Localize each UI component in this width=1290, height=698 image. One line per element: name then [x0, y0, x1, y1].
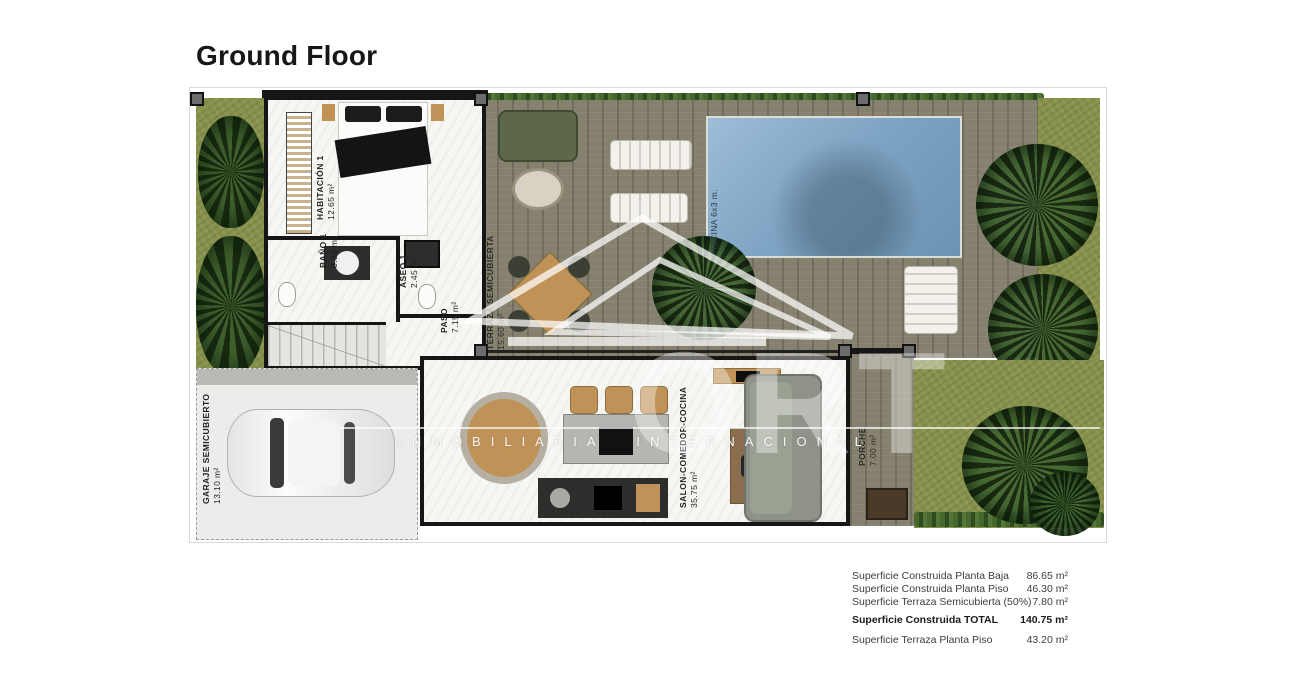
- duvet: [335, 126, 432, 178]
- room-label-piscina: PISCINA 6x3 m.: [710, 189, 720, 256]
- floor-plan: HABITACIÓN 1 12.65 m² BAÑO 1 3.35 m² ASE…: [190, 88, 1106, 542]
- cooktop: [594, 486, 622, 510]
- room-area: 35.75 m²: [690, 387, 700, 508]
- room-name: TERRAZA SEMICUBIERTA: [486, 235, 496, 350]
- toilet: [418, 284, 436, 309]
- room-label-habitacion: HABITACIÓN 1 12.65 m²: [316, 155, 336, 220]
- sofa-seats: [750, 382, 792, 514]
- tree: [196, 236, 266, 376]
- round-dining-table: [460, 392, 548, 484]
- room-name: GARAJE SEMICUBIERTO: [202, 394, 212, 504]
- room-label-paso: PASO 7.15 m²: [440, 301, 460, 333]
- outdoor-chair: [568, 310, 590, 332]
- pillar: [190, 92, 204, 106]
- pillar: [856, 92, 870, 106]
- windshield: [270, 418, 284, 488]
- page-title: Ground Floor: [196, 40, 377, 72]
- sun-lounger: [610, 140, 692, 170]
- pillow: [386, 106, 422, 122]
- room-label-salon: SALON-COMEDOR-COCINA 35.75 m²: [679, 387, 699, 508]
- pillar: [838, 344, 852, 358]
- kitchen-sink: [550, 488, 570, 508]
- garage: [196, 368, 418, 540]
- room-name: SALON-COMEDOR-COCINA: [679, 387, 689, 508]
- room-name: HABITACIÓN 1: [316, 155, 326, 220]
- cutting-board: [636, 484, 660, 512]
- sofa: [744, 374, 822, 522]
- room-label-aseo: ASEO 1 2.45 m²: [399, 254, 419, 288]
- toilet: [278, 282, 296, 307]
- nightstand: [322, 104, 335, 121]
- swimming-pool: [706, 116, 962, 258]
- room-area: 3.35 m²: [330, 233, 340, 268]
- room-area: 7.15 m²: [451, 301, 461, 333]
- room-area: 13.10 m²: [213, 394, 223, 504]
- rear-window: [344, 422, 355, 484]
- summary-value: 43.20 m²: [1027, 634, 1068, 647]
- staircase: [268, 322, 386, 366]
- summary-value: 7.80 m²: [1032, 596, 1068, 609]
- door-mat: [866, 488, 908, 520]
- room-name: PASO: [440, 301, 450, 333]
- room-name: PORCHE: [858, 427, 868, 466]
- double-sun-lounger: [904, 266, 958, 334]
- summary-label: Superficie Construida Planta Baja: [852, 570, 1009, 583]
- room-area: 15.60 m²: [497, 235, 507, 350]
- room-area: 2.45 m²: [410, 254, 420, 288]
- bed: [338, 102, 428, 236]
- summary-value: 140.75 m²: [1020, 614, 1068, 627]
- outdoor-chair: [508, 256, 530, 278]
- sliding-door-track: [482, 350, 852, 353]
- pillar: [902, 344, 916, 358]
- room-area: 7.00 m²: [869, 427, 879, 466]
- pillow: [345, 106, 381, 122]
- room-name: ASEO 1: [399, 254, 409, 288]
- dining-chair: [570, 386, 598, 414]
- tree: [198, 116, 264, 228]
- summary-row: Superficie Construida Planta Baja 86.65 …: [852, 570, 1068, 583]
- summary-row-total: Superficie Construida TOTAL 140.75 m²: [852, 614, 1068, 627]
- room-label-garaje: GARAJE SEMICUBIERTO 13.10 m²: [202, 394, 222, 504]
- room-label-terraza: TERRAZA SEMICUBIERTA 15.60 m²: [486, 235, 506, 350]
- summary-row: Superficie Construida Planta Piso 46.30 …: [852, 583, 1068, 596]
- table-runner: [599, 427, 633, 455]
- outdoor-chair: [508, 310, 530, 332]
- wardrobe: [286, 112, 312, 234]
- palm-tree: [1030, 472, 1100, 536]
- lower-building: [420, 356, 850, 526]
- summary-value: 86.65 m²: [1027, 570, 1068, 583]
- nightstand: [431, 104, 444, 121]
- outdoor-sofa: [498, 110, 578, 162]
- room-label-porche: PORCHE 7.00 m²: [858, 427, 878, 466]
- palm-tree: [976, 144, 1098, 266]
- room-label-bano: BAÑO 1 3.35 m²: [319, 233, 339, 268]
- room-area: 12.65 m²: [327, 155, 337, 220]
- garage-apron: [197, 369, 417, 385]
- parapet-wall: [262, 90, 488, 98]
- room-name: BAÑO 1: [319, 233, 329, 268]
- summary-value: 46.30 m²: [1027, 583, 1068, 596]
- surface-summary-table: Superficie Construida Planta Baja 86.65 …: [852, 570, 1068, 647]
- dining-chair: [605, 386, 633, 414]
- dining-table: [563, 414, 669, 464]
- pillar: [474, 92, 488, 106]
- car: [227, 409, 395, 497]
- summary-label: Superficie Construida Planta Piso: [852, 583, 1008, 596]
- round-side-table: [512, 168, 564, 210]
- summary-row: Superficie Terraza Semicubierta (50%) 7.…: [852, 596, 1068, 609]
- summary-label: Superficie Terraza Semicubierta (50%): [852, 596, 1032, 609]
- kitchen-counter: [538, 478, 668, 518]
- dining-chair: [640, 386, 668, 414]
- car-roof: [288, 420, 340, 486]
- palm-tree: [652, 236, 756, 340]
- sun-lounger: [610, 193, 688, 223]
- summary-label: Superficie Construida TOTAL: [852, 614, 998, 627]
- summary-row: Superficie Terraza Planta Piso 43.20 m²: [852, 634, 1068, 647]
- outdoor-chair: [568, 256, 590, 278]
- room-name: PISCINA 6x3 m.: [710, 189, 720, 256]
- summary-label: Superficie Terraza Planta Piso: [852, 634, 992, 647]
